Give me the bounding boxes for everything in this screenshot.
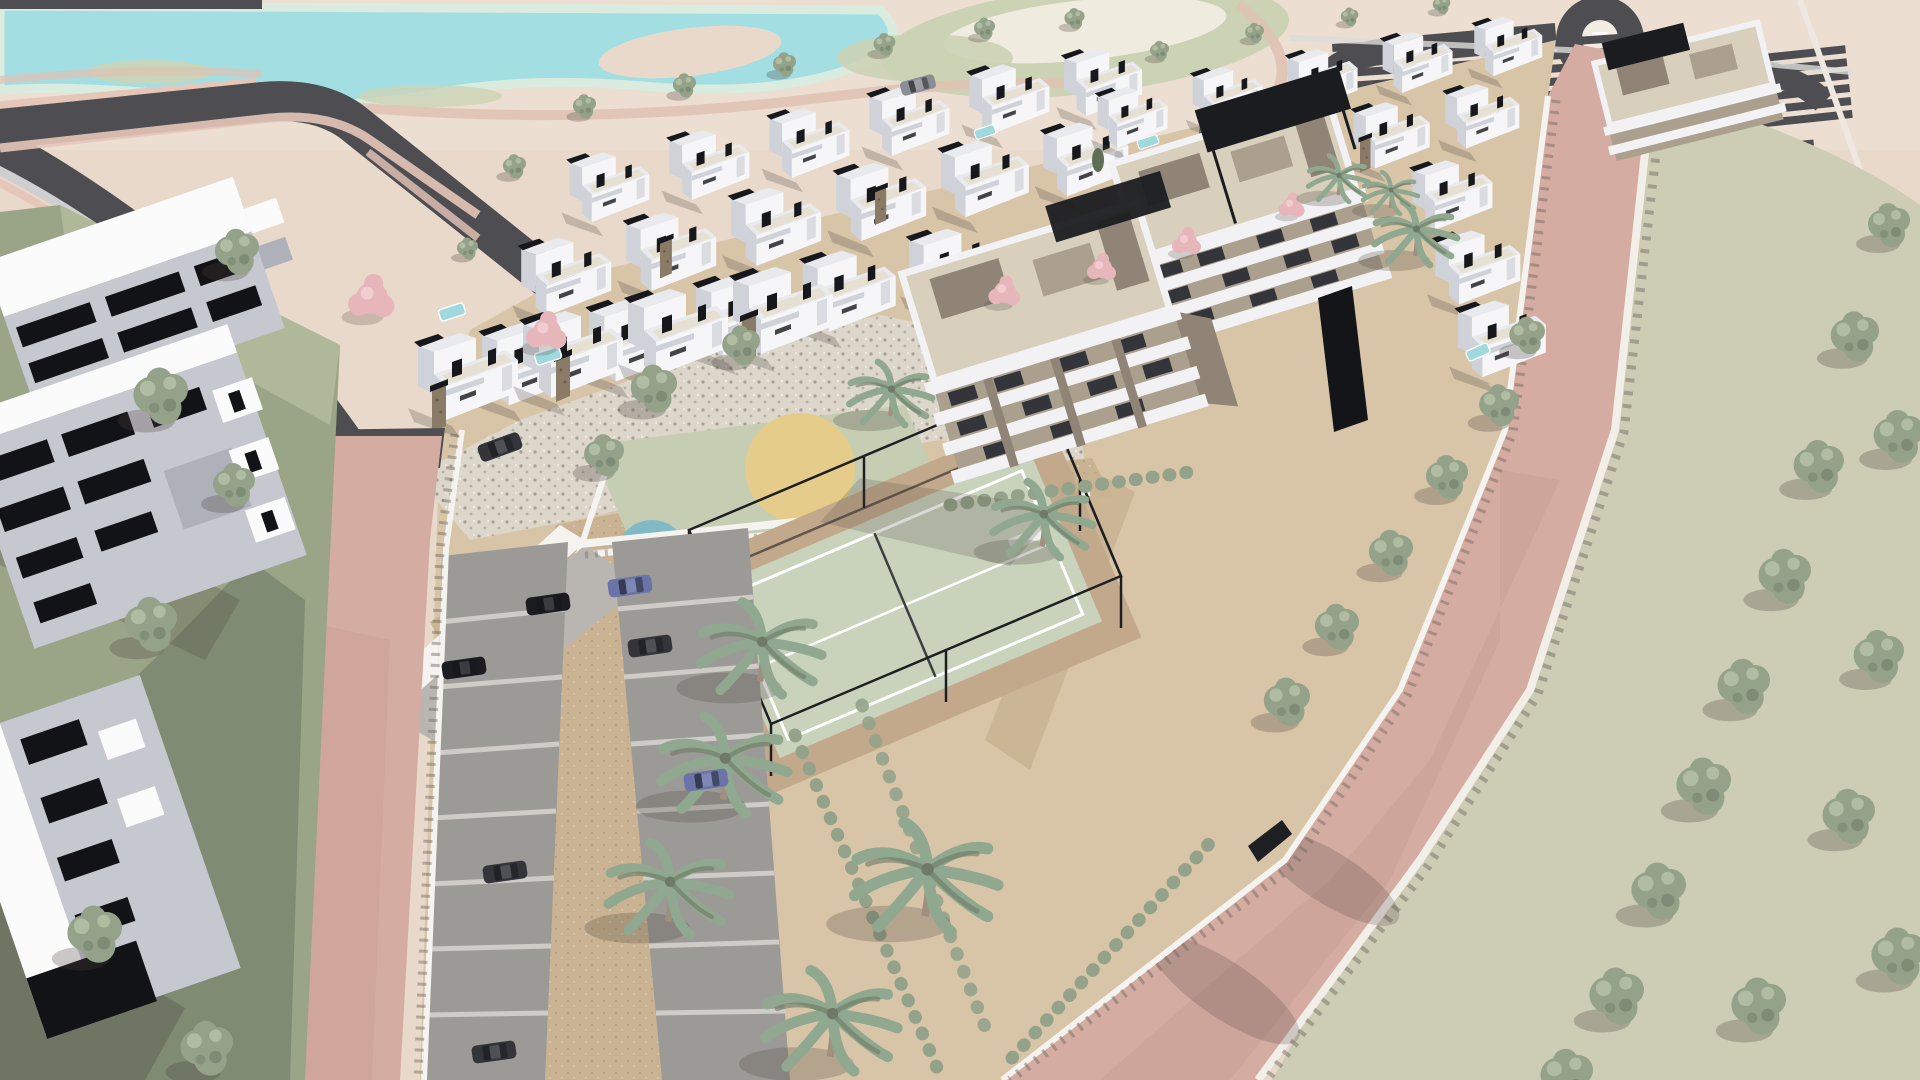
render-canvas [0, 0, 1920, 1080]
aerial-render [0, 0, 1920, 1080]
street-top [0, 0, 262, 9]
fairway-patch [358, 85, 502, 107]
